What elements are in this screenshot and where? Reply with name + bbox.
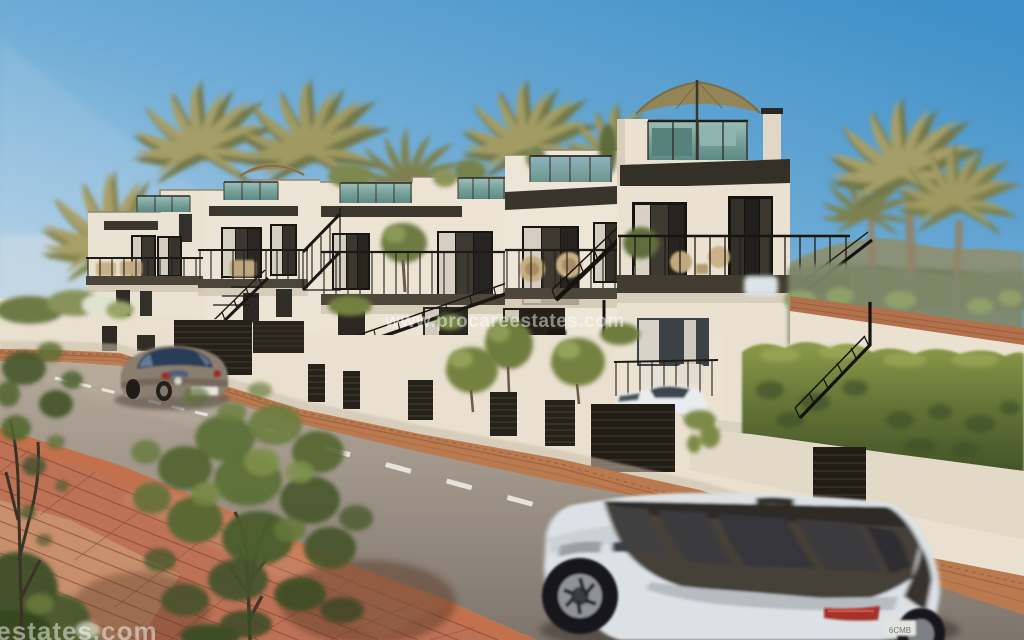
svg-text:6CMB: 6CMB — [889, 626, 911, 635]
svg-text:www.procareestates.com: www.procareestates.com — [384, 311, 624, 332]
svg-text:www.procareestates.com: www.procareestates.com — [0, 616, 158, 640]
